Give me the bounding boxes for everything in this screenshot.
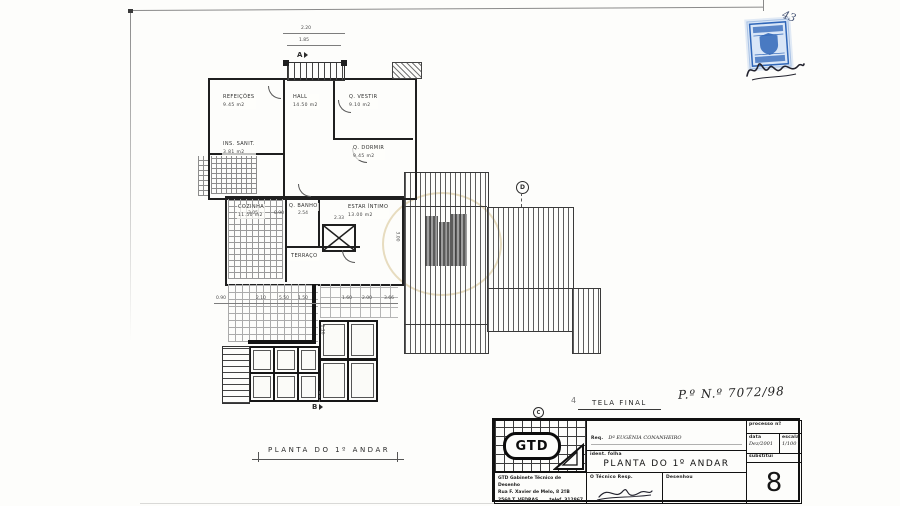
data-label: data	[747, 434, 779, 441]
dimension-label: 3.05	[248, 211, 258, 216]
dimension-label: 2.10	[256, 296, 266, 301]
desenhou-label: Desenhou	[666, 475, 693, 480]
tecnico-label: O Técnico Resp.	[590, 475, 633, 480]
section-marker-label: C	[537, 410, 541, 416]
title-block: GTD GTD Gabinete Técnico de Desenho Rua …	[492, 418, 800, 502]
terrace-tiling	[320, 284, 398, 318]
tecnico-cell: O Técnico Resp.	[586, 472, 663, 504]
escala-label: escala	[780, 434, 801, 441]
drawing-title-cell: ident. folha PLANTA DO 1º ANDAR	[586, 450, 747, 473]
section-line	[521, 193, 522, 207]
dimension-label: 0.90	[216, 296, 226, 301]
room-label-refeicoes: REFEIÇÕES9.45 m2	[222, 94, 256, 109]
marker-arrow-icon	[319, 404, 323, 410]
company-line: Rua F. Xavier de Melo, 8 2ºB	[498, 489, 583, 496]
dimension-label: 2.54	[298, 211, 308, 216]
section-marker-b: B	[312, 403, 323, 411]
stair-post	[283, 60, 289, 66]
side-balcony-tiling	[198, 156, 208, 196]
skylight-box	[322, 224, 356, 252]
glass-panel	[297, 346, 320, 374]
glass-panel	[273, 346, 299, 374]
wall-segment	[283, 78, 285, 196]
glass-panel	[273, 372, 299, 402]
caption-tick	[258, 452, 259, 462]
escala-cell: escala 1/100	[779, 433, 802, 454]
dimension-label: 1.16	[320, 324, 325, 334]
glass-panel	[347, 359, 378, 402]
company-address-cell: GTD Gabinete Técnico de Desenho Rua F. X…	[494, 472, 587, 504]
overprint-stamp	[425, 216, 438, 266]
wall-segment	[333, 78, 335, 140]
company-line: 2560 T. VEDRAS telef. 312867	[498, 497, 583, 504]
data-value: Dez/2001	[747, 441, 779, 447]
req-label: Req.	[591, 436, 603, 441]
substitui-label: substitui	[747, 454, 801, 459]
dimension-label: 5.50	[279, 296, 289, 301]
dimension-label: 3.66	[384, 296, 394, 301]
plan-caption: PLANTA DO 1º ANDAR	[268, 446, 390, 454]
company-phone: telef. 312867	[549, 497, 583, 504]
tecnico-signature	[595, 483, 655, 503]
processo-label: processo nº	[747, 421, 801, 428]
dimension-line	[214, 303, 398, 304]
section-marker-label: B	[312, 403, 317, 411]
dimension-label: 1.50	[298, 296, 308, 301]
roof-ridge-line	[404, 206, 487, 207]
room-label-qdormir: Q. DORMIR9.45 m2	[352, 145, 385, 160]
parapet-wall	[312, 284, 316, 342]
req-value: Dª EUGÉNIA CONANHEIRO	[608, 435, 681, 441]
data-cell: data Dez/2001	[746, 433, 780, 454]
overprint-stamp	[439, 222, 450, 266]
logo-cell: GTD	[494, 420, 587, 472]
roof-hatch-area	[572, 288, 601, 354]
section-marker-a: A	[297, 51, 308, 59]
escala-value: 1/100	[780, 441, 801, 447]
wall-segment	[333, 138, 413, 140]
roof-ridge-line	[487, 288, 572, 289]
req-line: Req. Dª EUGÉNIA CONANHEIRO	[591, 423, 742, 445]
caption-underline	[252, 459, 404, 460]
section-marker-label: D	[520, 184, 525, 191]
desenhou-cell: Desenhou	[662, 472, 747, 504]
glass-panel	[347, 320, 378, 360]
section-line	[319, 391, 320, 402]
room-label-inssanit: INS. SANIT.3.81 m2	[222, 141, 256, 156]
project-info-cell: Req. Dª EUGÉNIA CONANHEIRO Local. VILA F…	[586, 420, 747, 451]
ident-label: ident. folha	[590, 452, 622, 457]
dimension-label: 1.60	[342, 296, 352, 301]
terrace-tiling	[228, 284, 318, 342]
skylight-cross-icon	[324, 226, 354, 250]
signature	[744, 54, 806, 84]
drawing-title: PLANTA DO 1º ANDAR	[587, 459, 746, 469]
drawing-sheet: A B D C REFEIÇÕES9.45 m2 HALL14.50 m2 Q.…	[0, 0, 900, 506]
room-label-qvestir: Q. VESTIR9.10 m2	[348, 94, 378, 109]
glass-panel	[319, 359, 349, 402]
stair-post	[341, 60, 347, 66]
room-label-estarintimo: ESTAR ÍNTIMO13.00 m2	[347, 204, 389, 219]
marker-arrow-icon	[304, 52, 308, 58]
bathroom-tiling	[211, 156, 257, 194]
section-marker-d: D	[516, 181, 529, 194]
glass-panel	[297, 372, 320, 402]
roof-ridge-line	[404, 324, 487, 325]
dimension-line	[287, 45, 341, 46]
company-line: GTD Gabinete Técnico de Desenho	[498, 475, 583, 489]
section-marker-label: A	[297, 51, 302, 59]
dimension-label: 0.90	[274, 211, 284, 216]
staircase-bottom	[222, 346, 250, 404]
overprint-stamp	[451, 214, 467, 266]
staircase-top	[287, 62, 345, 81]
dimension-label: 2.33	[334, 216, 344, 221]
set-square-icon	[553, 443, 585, 471]
wall-segment	[285, 196, 287, 282]
room-label-qbanho: Q. BANHO	[288, 203, 319, 211]
glass-panel	[249, 372, 275, 402]
dimension-label: 1.85	[299, 38, 309, 43]
sheet-number: 8	[766, 468, 783, 498]
sheet-number-cell: 8	[746, 462, 802, 504]
dimension-label: 2.20	[301, 26, 311, 31]
tela-final-label: TELA FINAL	[578, 399, 661, 410]
processo-cell: processo nº	[746, 420, 802, 434]
fold-mark: 4	[571, 396, 576, 405]
dimension-line	[283, 33, 345, 34]
company-city: 2560 T. VEDRAS	[498, 497, 538, 504]
section-marker-c: C	[533, 407, 544, 418]
room-label-hall: HALL14.50 m2	[292, 94, 319, 109]
caption-tick	[397, 452, 398, 462]
roof-hatch-area	[487, 207, 574, 332]
balcony-hatch	[392, 62, 422, 79]
parapet-wall	[248, 340, 316, 344]
glass-panel	[249, 346, 275, 374]
dimension-label: 2.00	[362, 296, 372, 301]
room-label-terraco: TERRAÇO	[290, 253, 319, 261]
dimension-label: 3.00	[395, 231, 400, 241]
